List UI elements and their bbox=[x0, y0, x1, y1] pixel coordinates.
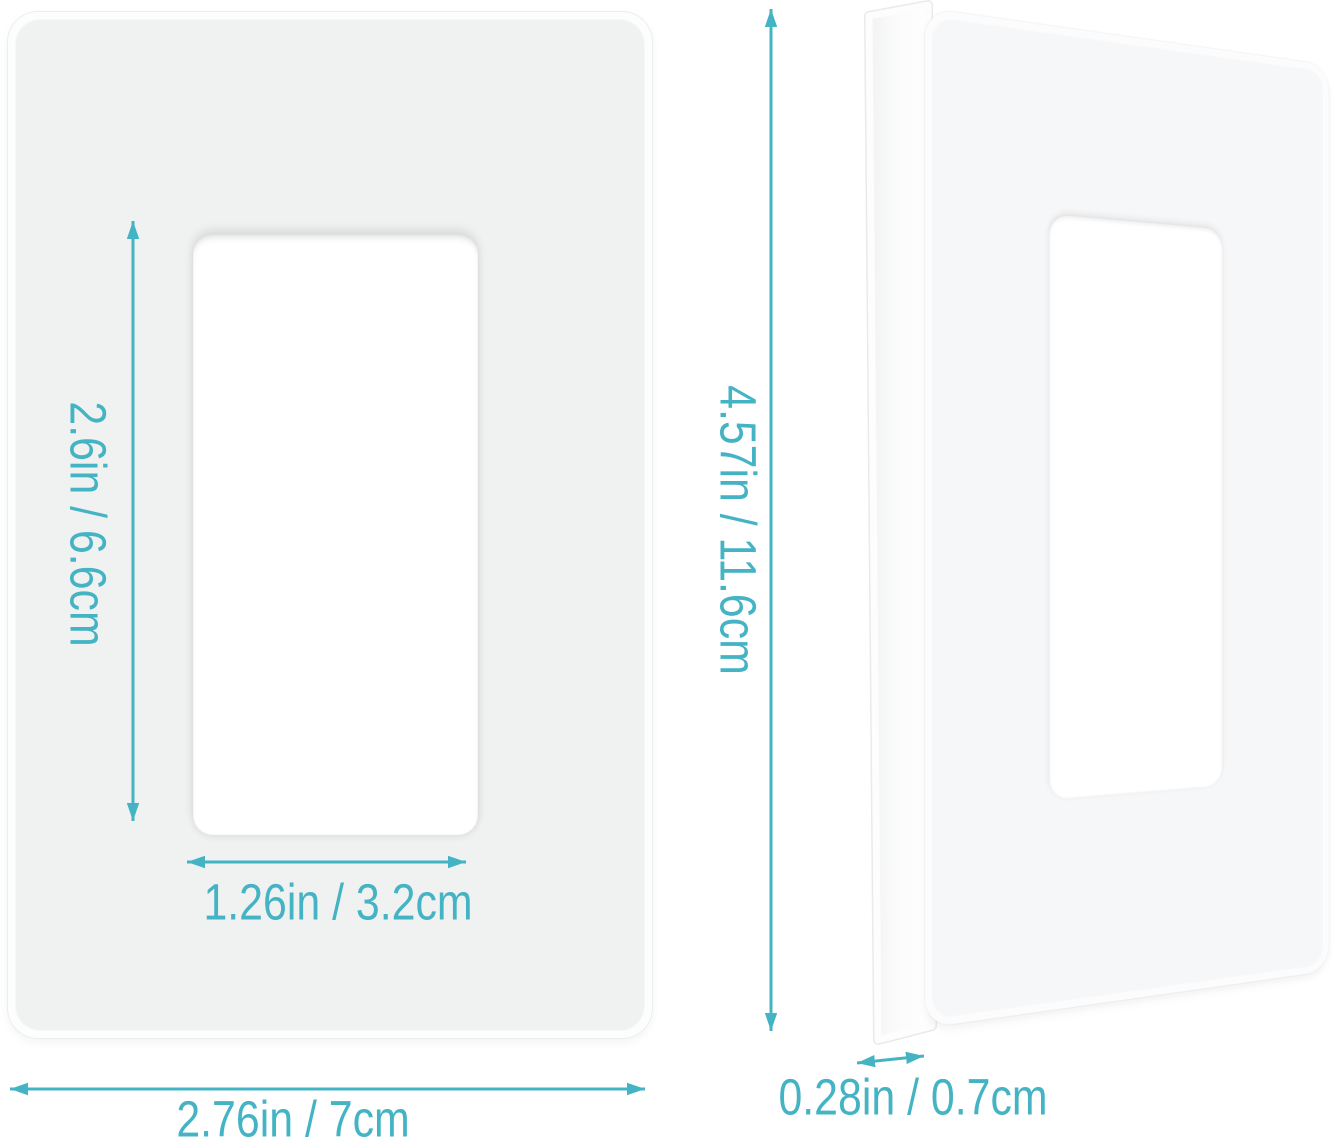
cutout-width-label: 1.26in / 3.2cm bbox=[203, 877, 472, 928]
wall-plate-side-cutout bbox=[1049, 213, 1223, 800]
wall-plate-front-cutout bbox=[193, 234, 478, 835]
side-edge-face bbox=[869, 5, 932, 1040]
plate-thickness-arrow bbox=[857, 1056, 924, 1063]
plate-height-label: 4.57in / 11.6cm bbox=[713, 385, 764, 675]
plate-thickness-label: 0.28in / 0.7cm bbox=[778, 1072, 1047, 1123]
plate-width-label: 2.76in / 7cm bbox=[176, 1094, 409, 1145]
dimension-diagram: 2.6in / 6.6cm 1.26in / 3.2cm 2.76in / 7c… bbox=[0, 0, 1335, 1144]
wall-plate-side-view bbox=[925, 8, 1329, 1028]
cutout-height-label: 2.6in / 6.6cm bbox=[63, 401, 114, 646]
